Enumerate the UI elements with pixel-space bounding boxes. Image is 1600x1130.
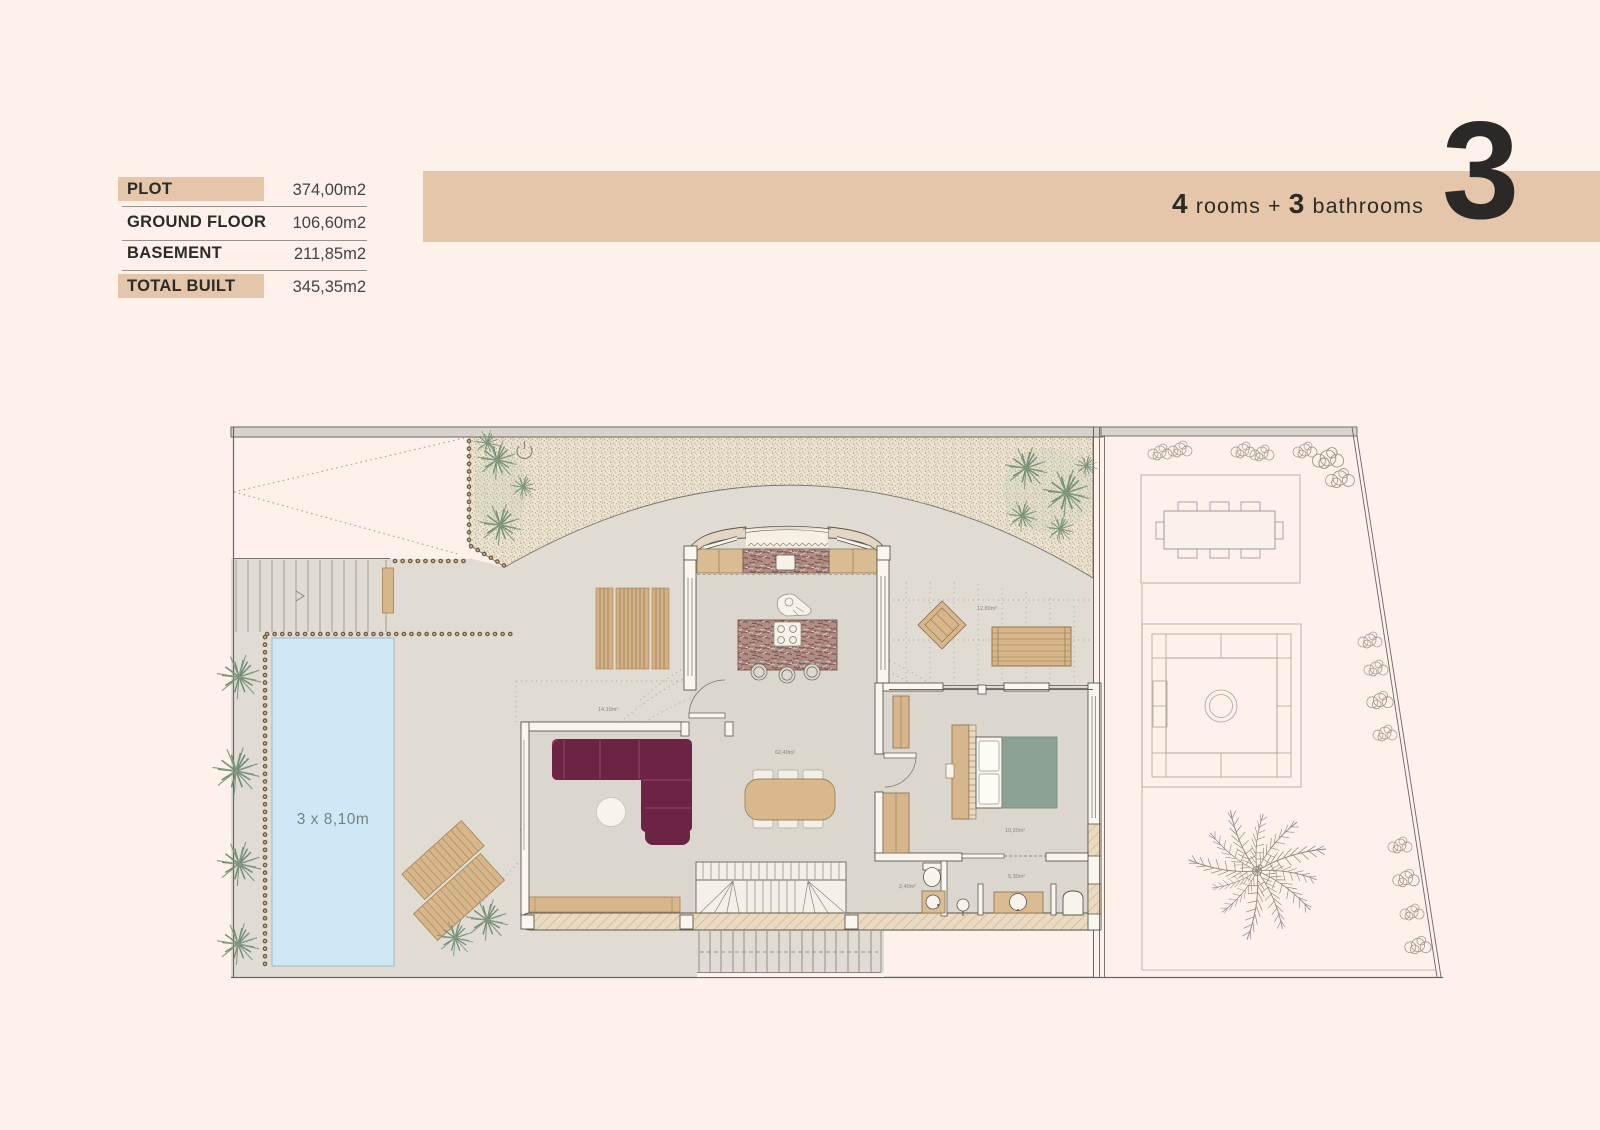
svg-text:14,10m²: 14,10m² [598, 707, 618, 713]
svg-text:2,40m²: 2,40m² [899, 884, 916, 890]
svg-text:3 x 8,10m: 3 x 8,10m [297, 811, 370, 828]
svg-text:10,20m²: 10,20m² [1005, 828, 1025, 834]
svg-text:5,30m²: 5,30m² [1008, 874, 1025, 880]
svg-text:12,80m²: 12,80m² [977, 606, 997, 612]
svg-text:62,40m²: 62,40m² [775, 750, 795, 756]
